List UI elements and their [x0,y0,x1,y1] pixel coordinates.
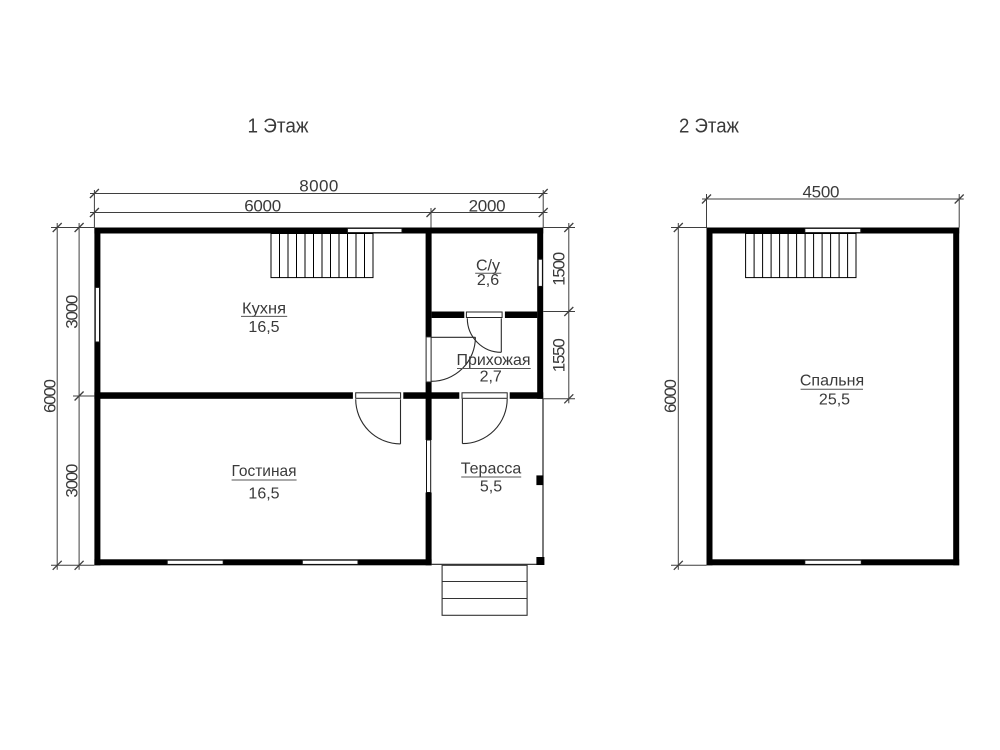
svg-text:Прихожая: Прихожая [457,352,531,369]
svg-text:2 Этаж: 2 Этаж [679,116,740,138]
svg-text:Терасса: Терасса [461,460,522,477]
svg-text:8000: 8000 [299,177,338,196]
svg-text:4500: 4500 [803,183,840,202]
svg-text:Спальня: Спальня [800,373,864,390]
svg-text:2,7: 2,7 [480,368,502,385]
svg-text:2000: 2000 [469,197,506,216]
svg-text:6000: 6000 [244,197,281,216]
svg-text:1550: 1550 [549,338,568,372]
svg-text:1 Этаж: 1 Этаж [248,116,310,138]
svg-text:Гостиная: Гостиная [232,463,297,480]
svg-text:3000: 3000 [62,464,81,498]
svg-text:2,6: 2,6 [477,272,499,289]
svg-text:5,5: 5,5 [480,478,502,495]
svg-text:Кухня: Кухня [242,301,286,318]
svg-text:16,5: 16,5 [248,485,279,502]
svg-text:6000: 6000 [661,379,680,413]
svg-text:1500: 1500 [549,252,568,286]
svg-text:6000: 6000 [41,379,60,413]
svg-text:3000: 3000 [62,295,81,329]
svg-text:25,5: 25,5 [819,392,850,409]
svg-text:16,5: 16,5 [248,319,279,336]
